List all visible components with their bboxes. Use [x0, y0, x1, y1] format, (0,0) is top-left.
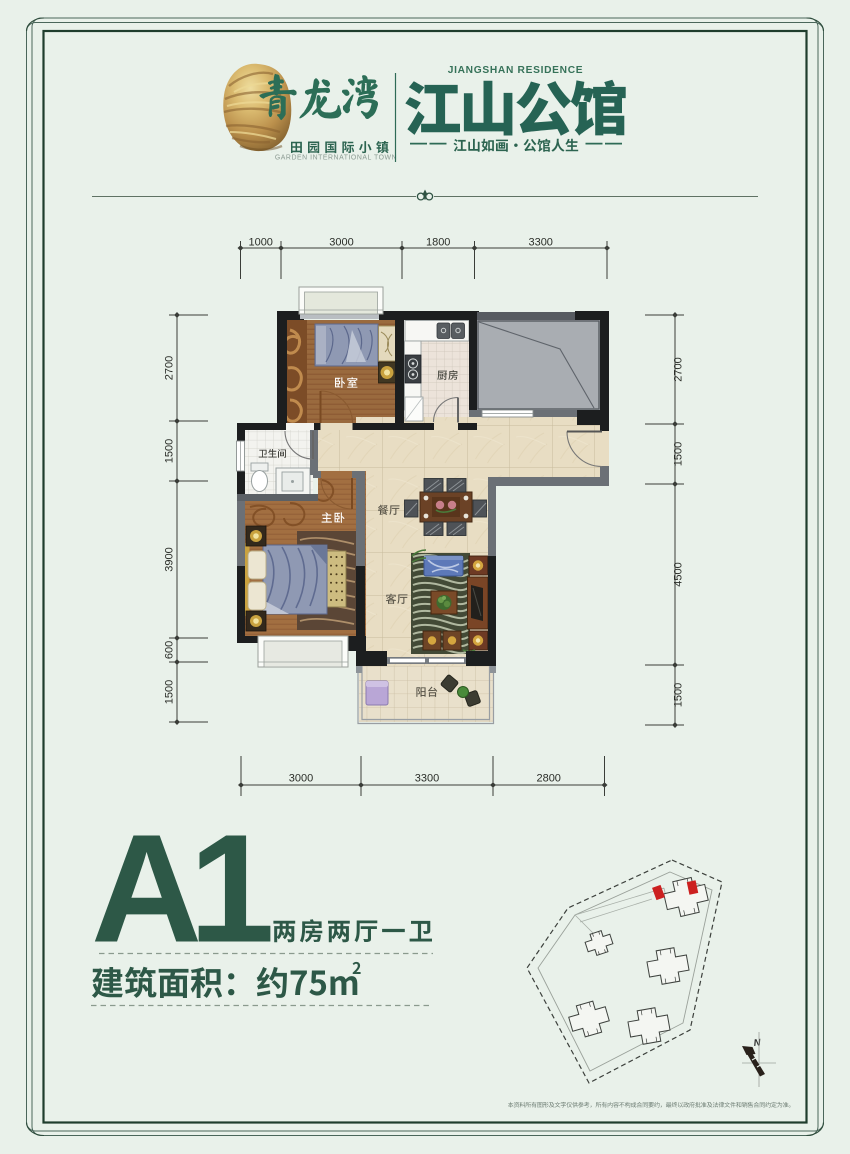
svg-text:GARDEN INTERNATIONAL TOWN: GARDEN INTERNATIONAL TOWN — [275, 155, 397, 162]
svg-text:JIANGSHAN RESIDENCE: JIANGSHAN RESIDENCE — [448, 65, 584, 76]
svg-text:1500: 1500 — [673, 442, 685, 466]
svg-text:A: A — [91, 803, 202, 975]
svg-text:1: 1 — [189, 803, 275, 975]
svg-text:3000: 3000 — [329, 237, 353, 249]
svg-text:2700: 2700 — [673, 357, 685, 381]
svg-text:1000: 1000 — [248, 237, 272, 249]
svg-text:3300: 3300 — [528, 237, 552, 249]
svg-text:3000: 3000 — [289, 773, 313, 785]
svg-text:600: 600 — [164, 641, 176, 659]
svg-text:4500: 4500 — [673, 562, 685, 586]
svg-text:1500: 1500 — [164, 680, 176, 704]
svg-text:3900: 3900 — [164, 547, 176, 571]
svg-text:1800: 1800 — [426, 237, 450, 249]
svg-text:2700: 2700 — [164, 356, 176, 380]
svg-text:1500: 1500 — [673, 683, 685, 707]
svg-text:3300: 3300 — [415, 773, 439, 785]
svg-text:2800: 2800 — [536, 773, 560, 785]
svg-text:1500: 1500 — [164, 439, 176, 463]
